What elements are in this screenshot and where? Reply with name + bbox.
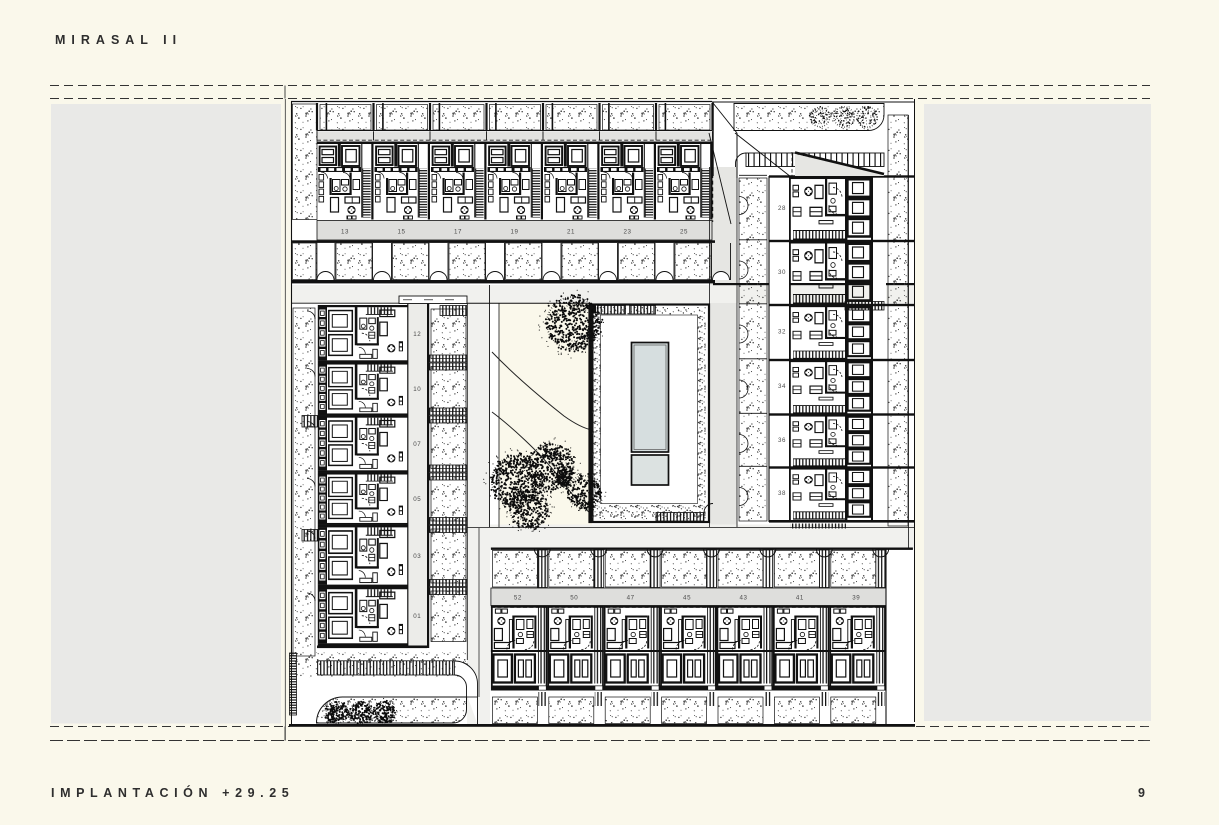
svg-text:45: 45 bbox=[683, 595, 691, 602]
svg-text:05: 05 bbox=[413, 496, 421, 503]
svg-text:13: 13 bbox=[341, 229, 349, 236]
svg-text:23: 23 bbox=[623, 229, 631, 236]
svg-text:34: 34 bbox=[778, 383, 786, 390]
svg-text:17: 17 bbox=[454, 229, 462, 236]
svg-text:38: 38 bbox=[778, 490, 786, 497]
svg-text:30: 30 bbox=[778, 269, 786, 276]
svg-text:43: 43 bbox=[739, 595, 747, 602]
svg-text:41: 41 bbox=[796, 595, 804, 602]
svg-text:19: 19 bbox=[510, 229, 518, 236]
svg-text:36: 36 bbox=[778, 437, 786, 444]
svg-text:MIRASAL II: MIRASAL II bbox=[55, 33, 182, 47]
svg-text:21: 21 bbox=[567, 229, 575, 236]
svg-text:52: 52 bbox=[514, 595, 522, 602]
svg-text:39: 39 bbox=[852, 595, 860, 602]
svg-text:03: 03 bbox=[413, 553, 421, 560]
svg-text:32: 32 bbox=[778, 329, 786, 336]
svg-text:15: 15 bbox=[397, 229, 405, 236]
svg-text:9: 9 bbox=[1138, 786, 1146, 800]
svg-text:12: 12 bbox=[413, 331, 421, 338]
svg-text:10: 10 bbox=[413, 386, 421, 393]
svg-text:07: 07 bbox=[413, 441, 421, 448]
svg-text:IMPLANTACIÓN +29.25: IMPLANTACIÓN +29.25 bbox=[51, 785, 294, 800]
svg-text:47: 47 bbox=[627, 595, 635, 602]
svg-text:01: 01 bbox=[413, 613, 421, 620]
svg-text:28: 28 bbox=[778, 205, 786, 212]
svg-text:25: 25 bbox=[680, 229, 688, 236]
svg-text:50: 50 bbox=[570, 595, 578, 602]
